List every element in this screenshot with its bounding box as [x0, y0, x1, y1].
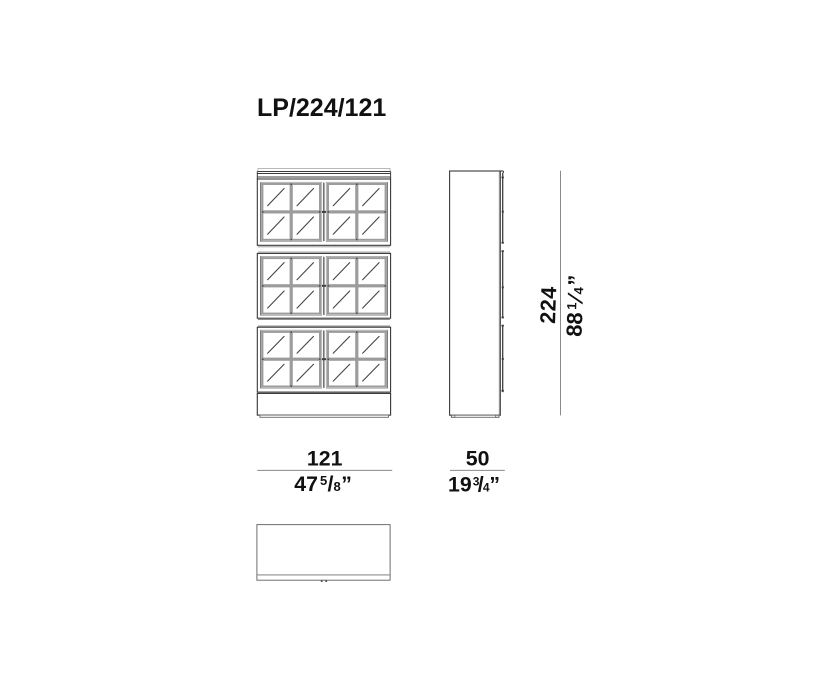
svg-text:224: 224: [535, 286, 561, 324]
svg-text:LP/224/121: LP/224/121: [257, 94, 386, 122]
svg-text:50: 50: [466, 447, 490, 471]
svg-text:121: 121: [307, 446, 343, 470]
